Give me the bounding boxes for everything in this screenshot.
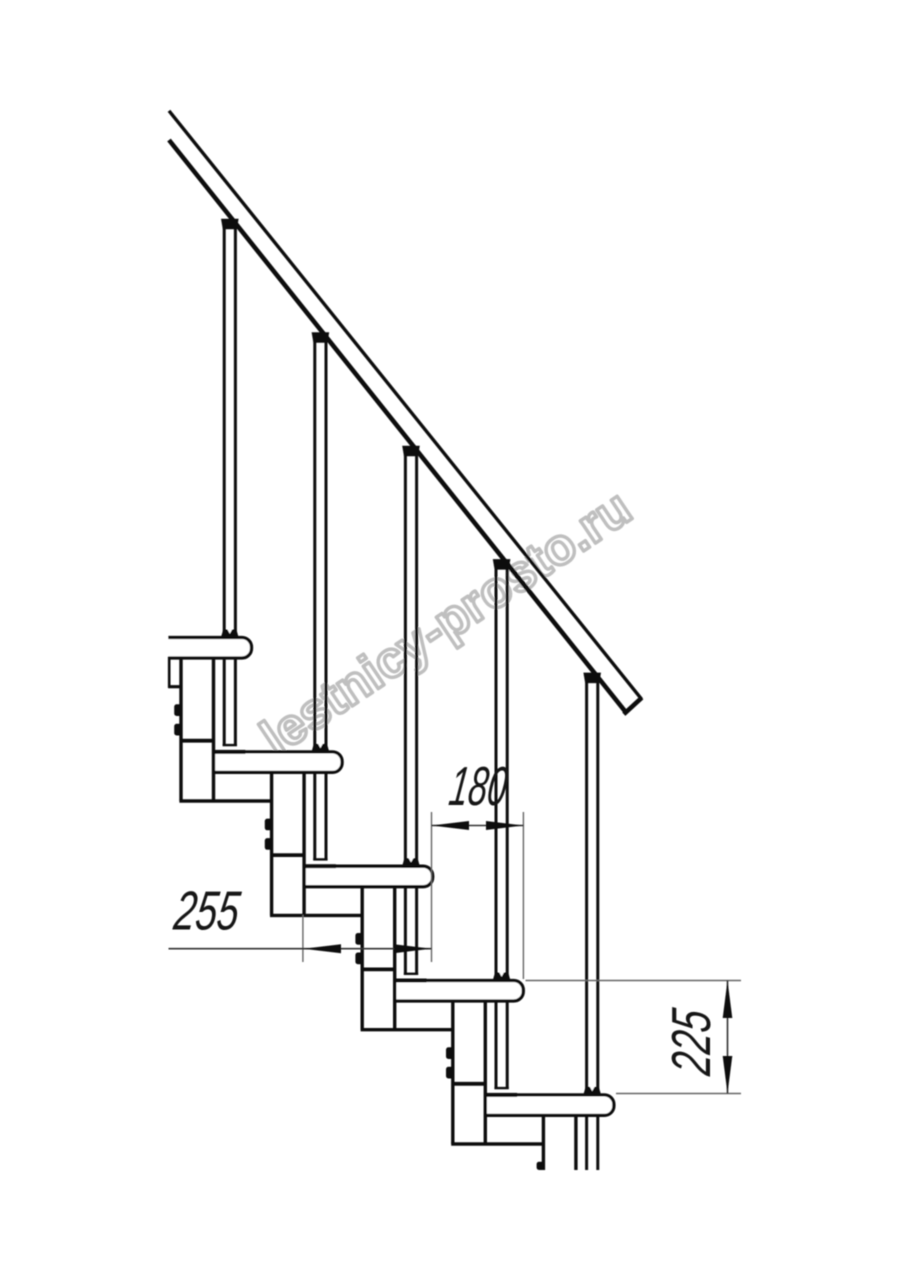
svg-text:255: 255 [170, 881, 244, 942]
svg-text:180: 180 [446, 755, 512, 817]
svg-text:225: 225 [662, 1005, 723, 1079]
